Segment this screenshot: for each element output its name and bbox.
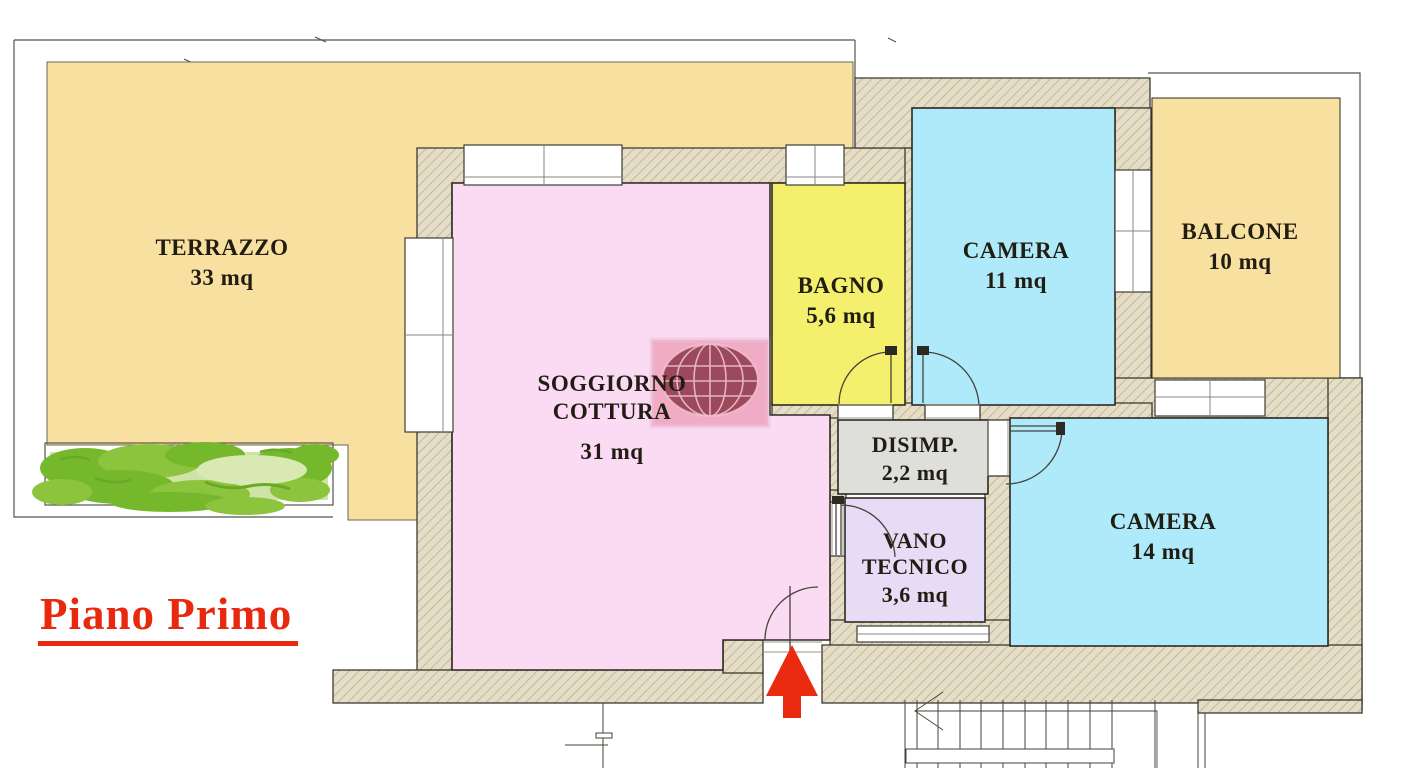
room-disimpegno-floor: [838, 420, 988, 494]
room-camera11-floor: [912, 108, 1115, 405]
floorplan-canvas: TERRAZZO 33 mq SOGGIORNO COTTURA 31 mq B…: [0, 0, 1416, 768]
hedge-planter: [32, 442, 339, 515]
room-bagno-floor: [772, 183, 905, 405]
floorplan-drawing: [0, 0, 1416, 768]
room-balcone-floor: [1152, 98, 1340, 378]
entrance-arrow-icon: [766, 645, 818, 718]
room-vano-tecnico-floor: [845, 498, 985, 622]
floor-title: Piano Primo: [38, 588, 298, 646]
globe-watermark-icon: [652, 340, 768, 426]
room-camera14-floor: [1010, 418, 1328, 646]
